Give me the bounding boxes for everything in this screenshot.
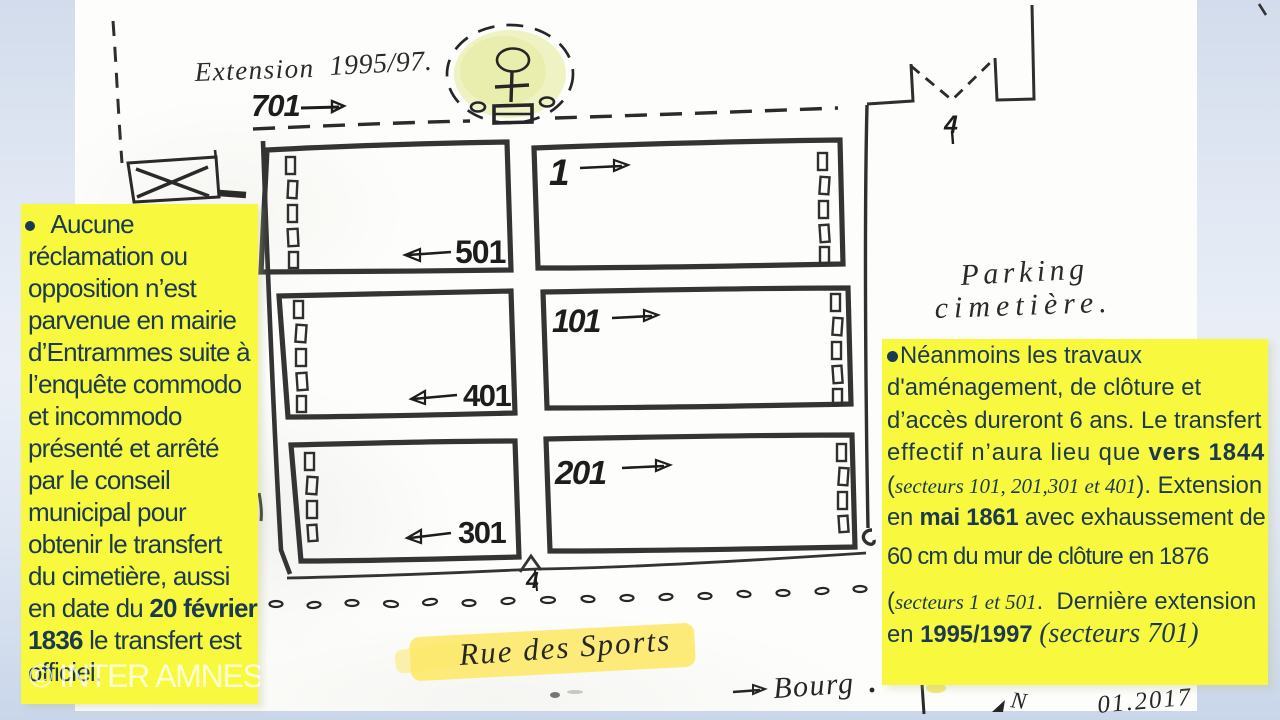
svg-text:701: 701 (251, 88, 300, 123)
svg-text:4: 4 (943, 111, 958, 139)
svg-text:Extension: Extension (193, 53, 315, 87)
svg-text:01.2017: 01.2017 (1096, 684, 1193, 719)
svg-text:Parking: Parking (959, 252, 1090, 292)
svg-text:401: 401 (463, 378, 511, 413)
svg-text:N: N (1008, 687, 1029, 714)
svg-text:201: 201 (554, 454, 606, 491)
svg-text:1995/97.: 1995/97. (329, 46, 433, 82)
svg-text:101: 101 (552, 303, 601, 339)
svg-text:301: 301 (458, 515, 506, 550)
svg-text:Bourg: Bourg (772, 666, 855, 705)
svg-text:cimetière.: cimetière. (934, 286, 1113, 325)
svg-text:501: 501 (455, 234, 506, 270)
svg-text:1: 1 (549, 152, 570, 193)
